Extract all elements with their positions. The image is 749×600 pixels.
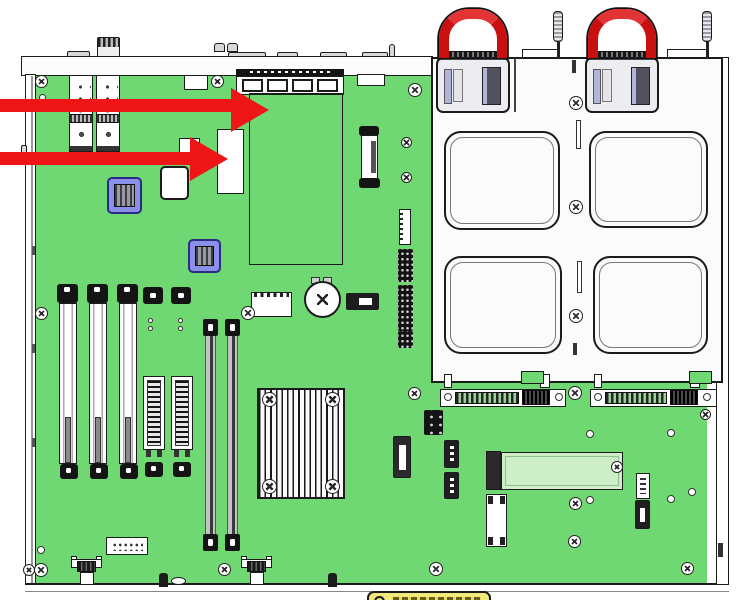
front-panel-header-pins — [112, 542, 143, 551]
rear-io-port-3 — [292, 79, 313, 92]
rear-port-connector-tall — [97, 37, 120, 57]
rear-io-label-dashes — [250, 71, 330, 73]
pin-header-3 — [398, 331, 413, 348]
pcb-dot-7 — [688, 488, 696, 496]
heatsink-screw-2 — [325, 392, 340, 407]
blue-chip-1 — [107, 177, 142, 214]
pcie-slot-2-key — [95, 417, 101, 463]
heatsink-screw-1 — [262, 392, 277, 407]
psu-2 — [585, 57, 659, 113]
chassis-top-rail — [21, 56, 433, 76]
connector-teeth — [98, 38, 119, 47]
corner-mark-1 — [488, 496, 493, 504]
riser-connector-cap-bottom — [359, 178, 380, 188]
pcb-screw-3 — [408, 83, 422, 97]
pcie-slot-2-cap-top — [87, 284, 108, 303]
thumbscrew-1 — [553, 11, 563, 42]
sfp-cage-1-pin — [79, 132, 84, 137]
pcb-dot-2 — [37, 546, 45, 554]
rear-port-bump-5 — [362, 52, 388, 57]
pcb-screw-1 — [35, 75, 48, 88]
pcb-dot-3 — [586, 430, 594, 438]
psu-1-bar-lavender — [444, 69, 452, 104]
standoff-screw-1 — [401, 137, 412, 148]
jumper-screw — [241, 306, 255, 320]
edge-connector-1-teeth — [455, 392, 519, 404]
rear-port-bump-pair-a — [214, 43, 225, 52]
power-pin-block — [424, 410, 443, 435]
heatsink-screw-4 — [325, 479, 340, 494]
psu-bay-step-2 — [667, 49, 707, 58]
cage-screw-3 — [569, 309, 583, 323]
left-wall-tick-3 — [32, 438, 35, 447]
warning-label-icon — [374, 596, 385, 600]
pcie-slot-1-cap-top — [57, 284, 78, 303]
pcb-screw-10 — [700, 409, 711, 420]
mezz-connector-1 — [143, 287, 163, 304]
pcie-slot-3-cap-top — [117, 284, 138, 303]
board-oval — [171, 577, 186, 585]
psu-handle-2 — [588, 9, 656, 58]
edge-screw-middle — [568, 386, 582, 400]
pcie-slot-1-cap-bottom — [60, 464, 78, 479]
rear-io-top-strip — [236, 69, 344, 76]
psu-2-bar-dark — [631, 67, 650, 105]
pcb-dot-5 — [586, 496, 594, 504]
card-connector-2-foot-b — [185, 450, 190, 457]
mezz-connector-2 — [171, 287, 191, 304]
cage-green-tab-2 — [689, 371, 712, 384]
cage-center-slot-2 — [577, 261, 582, 293]
switch-slider — [359, 298, 372, 305]
dimm-1-latch-bottom — [203, 534, 218, 551]
dimm-slot-2 — [227, 336, 238, 534]
card-connector-1-cap — [145, 462, 163, 477]
pcb-dot-6 — [667, 495, 675, 503]
usb-header-pins — [640, 478, 646, 494]
bracket-tab-left — [184, 75, 208, 90]
corner-mark-4 — [500, 537, 505, 545]
psu-1-bar-dark — [482, 67, 501, 105]
cage-center-tick-1 — [572, 60, 576, 73]
via-dot-3 — [178, 318, 183, 323]
edge-connector-2-teeth — [605, 392, 667, 404]
drive-bay-cutout-1 — [444, 131, 560, 230]
pcie-slot-1-key — [65, 417, 71, 463]
m2-ssd-inner — [505, 456, 619, 486]
sata-connector-1-slot — [399, 445, 406, 470]
callout-arrow-1-body — [0, 99, 233, 112]
card-connector-2-teeth — [175, 380, 189, 446]
pcb-screw-6 — [23, 564, 35, 576]
sata-connector-2-pins — [450, 446, 454, 464]
callout-arrow-2-head — [190, 137, 228, 181]
drive-bay-cutout-2 — [589, 131, 708, 228]
fp-conn-1-stem — [80, 572, 94, 585]
psu-2-bar-light — [602, 69, 612, 102]
dimm-2-latch-bottom — [225, 534, 240, 551]
card-connector-1-foot-b — [157, 450, 162, 457]
dimm-slot-1 — [205, 336, 216, 534]
m2-connector — [486, 451, 501, 490]
thumbscrew-2 — [702, 11, 712, 42]
sfp-cage-2-latch — [97, 114, 119, 123]
sfp-cage-2-base — [97, 146, 119, 151]
bracket-tab-right — [357, 74, 385, 86]
blue-chip-2-fins — [195, 246, 214, 266]
cage-leg-3 — [594, 374, 602, 388]
blue-chip-1-fins — [114, 184, 135, 207]
psu-2-bar-lavender — [593, 69, 601, 104]
psu-handle-1 — [439, 9, 507, 58]
sata-connector-3 — [444, 472, 459, 499]
riser-connector-key — [371, 141, 376, 173]
psu-bay-step-1 — [522, 49, 560, 58]
via-dot-2 — [148, 326, 153, 331]
clear-cmos-switch — [346, 293, 379, 310]
pcb-dot-4 — [667, 429, 675, 437]
jumper-block — [251, 292, 292, 317]
rear-io-port-4 — [317, 79, 338, 92]
board-post-2 — [328, 573, 337, 587]
cage-center-slot-1 — [576, 120, 581, 149]
rear-port-bump-2 — [228, 52, 266, 57]
fp-conn-2-stem — [250, 572, 264, 585]
callout-arrow-2-body — [0, 152, 192, 165]
drive-bay-cutout-4 — [593, 256, 708, 354]
usb-header-white — [636, 473, 650, 499]
rear-port-bump-1 — [67, 51, 90, 57]
rear-port-bump-4 — [320, 52, 347, 57]
sfp-cage-2 — [96, 75, 120, 152]
card-connector-1-teeth — [147, 380, 161, 446]
thumbscrew-2-stem — [706, 42, 709, 59]
front-panel-header — [106, 537, 148, 555]
left-wall-tick-2 — [32, 344, 35, 353]
rear-io-port-2 — [267, 79, 288, 92]
pcie-slot-3-cap-bottom — [120, 464, 138, 479]
edge-connector-1-block — [522, 390, 550, 405]
cage-screw-1 — [569, 96, 583, 110]
edge-connector-1-hole-left — [444, 393, 452, 401]
pcb-screw-9 — [681, 562, 694, 575]
fp-conn-2-pins — [247, 561, 266, 572]
warning-label — [367, 591, 491, 600]
cage-screw-2 — [569, 200, 583, 214]
fp-conn-1-pins — [77, 561, 96, 572]
edge-connector-2-hole-left — [594, 393, 602, 401]
pcb-screw-4 — [35, 307, 48, 320]
pin-header-2 — [398, 285, 413, 331]
psu-bay-divider — [514, 58, 516, 112]
sata-connector-4 — [635, 500, 650, 529]
callout-arrow-1-head — [231, 88, 269, 132]
heatsink-screw-3 — [262, 479, 277, 494]
pin-strip-white — [399, 209, 411, 245]
psu-1-bar-light — [453, 69, 463, 102]
m2-ssd-card — [501, 452, 623, 490]
pin-strip-teeth — [400, 213, 403, 241]
right-wall-tick-4 — [718, 543, 723, 557]
via-dot-1 — [148, 318, 153, 323]
card-connector-1-foot-a — [146, 450, 151, 457]
sata-connector-3-pins — [450, 478, 454, 495]
pcb-screw-2 — [211, 75, 224, 88]
pcb-screw-5 — [34, 563, 48, 577]
pcb-screw-7 — [218, 563, 231, 576]
standoff-screw-2 — [401, 172, 412, 183]
sfp-cage-1-base — [70, 146, 92, 151]
pcb-screw-11 — [569, 497, 582, 510]
sata-connector-1 — [393, 436, 411, 478]
pcie-slot-3-key — [125, 417, 131, 463]
pcie-slot-2-cap-bottom — [90, 464, 108, 479]
corner-mark-2 — [500, 496, 505, 504]
pin-header-1 — [398, 249, 413, 282]
pcb-screw-12 — [568, 535, 581, 548]
edge-connector-2-hole-right — [703, 393, 711, 401]
coin-battery — [304, 281, 341, 318]
m2-screw — [611, 461, 623, 473]
jumper-pins — [254, 293, 289, 297]
sata-connector-2 — [444, 440, 459, 468]
via-dot-4 — [178, 326, 183, 331]
card-connector-2-cap — [173, 462, 191, 477]
sfp-cage-2-pin — [106, 132, 111, 137]
pcb-screw-8 — [429, 562, 443, 576]
dimm-1-latch-top — [203, 319, 218, 336]
left-wall-tick-1 — [32, 246, 35, 255]
card-connector-2-foot-a — [174, 450, 179, 457]
edge-connector-2-block — [670, 390, 698, 405]
rear-antenna-pin — [389, 44, 395, 57]
cage-leg-1 — [444, 374, 452, 388]
sfp-cage-1-latch — [70, 114, 92, 123]
edge-screw-left — [408, 387, 421, 400]
edge-connector-1-hole-right — [555, 393, 563, 401]
sata-connector-4-slot — [640, 508, 645, 522]
corner-mark-3 — [488, 537, 493, 545]
diagram-canvas — [0, 0, 749, 600]
thumbscrew-1-stem — [557, 42, 560, 59]
cage-green-tab-1 — [521, 371, 544, 384]
psu-1 — [436, 57, 510, 113]
white-chip — [160, 166, 189, 200]
drive-bay-cutout-3 — [444, 256, 562, 354]
rear-port-bump-pair-b — [227, 43, 238, 52]
vertical-connector-white — [486, 494, 507, 547]
dimm-2-latch-top — [225, 319, 240, 336]
cage-center-tick-2 — [573, 343, 577, 355]
sfp-cage-1 — [69, 75, 93, 152]
rear-port-bump-3 — [277, 52, 298, 57]
board-post-1 — [159, 573, 168, 587]
blue-chip-2 — [188, 239, 221, 273]
